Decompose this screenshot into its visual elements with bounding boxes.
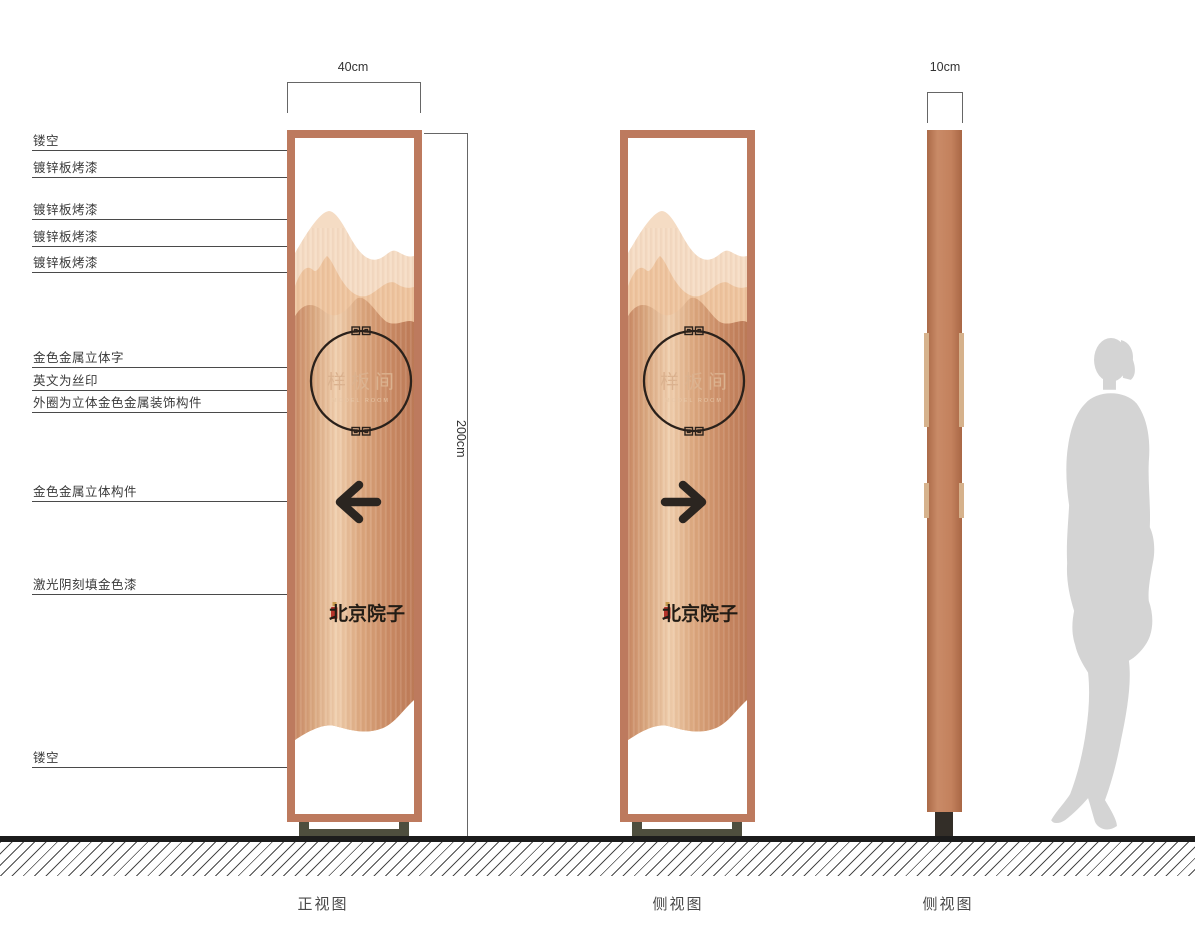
- dimension-width-bracket: [287, 82, 421, 113]
- callout-galvanized-3: 镀锌板烤漆: [33, 226, 98, 245]
- brand-text: 北京院子: [329, 602, 405, 625]
- callout-galvanized-1: 镀锌板烤漆: [33, 157, 98, 176]
- dimension-height-line: [467, 133, 468, 836]
- side-profile-foot: [935, 812, 953, 838]
- side-profile-column: [927, 130, 962, 812]
- dimension-depth-bracket: [927, 92, 963, 123]
- callout-english-silkscreen: 英文为丝印: [33, 370, 98, 389]
- leader-line: [32, 219, 300, 220]
- silhouette-hair: [1121, 340, 1135, 380]
- brushed-texture: [628, 228, 747, 814]
- callout-galvanized-4: 镀锌板烤漆: [33, 252, 98, 271]
- callout-gold-component: 金色金属立体构件: [33, 481, 137, 500]
- leader-line: [32, 412, 318, 413]
- callout-label: 外圈为立体金色金属装饰构件: [33, 392, 202, 411]
- dimension-depth-label: 10cm: [930, 60, 961, 74]
- side-profile-strip: [959, 333, 964, 427]
- leader-line: [32, 150, 305, 151]
- front-view-panel: 样板间 MODEL ROOM 北京院子: [295, 138, 414, 814]
- room-name-en-text: MODEL ROOM: [665, 398, 723, 404]
- caption-front-view: 正视图: [297, 893, 348, 914]
- callout-outer-ring: 外圈为立体金色金属装饰构件: [33, 392, 202, 411]
- callout-hollow-top: 镂空: [33, 130, 59, 149]
- callout-label: 镀锌板烤漆: [33, 226, 98, 245]
- brand-calligraphy: 北京院子: [329, 602, 405, 625]
- leader-line: [32, 272, 291, 273]
- leader-line: [32, 177, 288, 178]
- side-profile-strip: [924, 333, 929, 427]
- silhouette-body: [1051, 393, 1154, 829]
- callout-label: 镀锌板烤漆: [33, 157, 98, 176]
- room-name-text: 样板间: [327, 371, 399, 393]
- dimension-height-tick: [424, 133, 467, 134]
- caption-side-view-2: 侧视图: [922, 893, 973, 914]
- side-profile-strip: [924, 483, 929, 518]
- side-profile-strip: [959, 483, 964, 518]
- human-scale-silhouette: [1037, 334, 1167, 837]
- brand-text: 北京院子: [662, 602, 738, 625]
- callout-galvanized-2: 镀锌板烤漆: [33, 199, 98, 218]
- callout-label: 镀锌板烤漆: [33, 252, 98, 271]
- callout-label: 金色金属立体构件: [33, 481, 137, 500]
- side-view1-panel: 样板间 MODEL ROOM 北京院子: [628, 138, 747, 814]
- dimension-width-label: 40cm: [338, 60, 369, 74]
- callout-label: 激光阴刻填金色漆: [33, 574, 137, 593]
- brushed-texture: [295, 228, 414, 814]
- caption-side-view-1: 侧视图: [652, 893, 703, 914]
- room-name-text: 样板间: [660, 371, 732, 393]
- callout-laser-engraved: 激光阴刻填金色漆: [33, 574, 137, 593]
- leader-line: [32, 246, 288, 247]
- brand-calligraphy: 北京院子: [662, 602, 738, 625]
- callout-label: 英文为丝印: [33, 370, 98, 389]
- dimension-height-label: 200cm: [454, 420, 468, 458]
- callout-label: 金色金属立体字: [33, 347, 124, 366]
- signage-design-sheet: 镂空 镀锌板烤漆 镀锌板烤漆 镀锌板烤漆 镀锌板烤漆 金色金属立体字 英文为丝印…: [0, 0, 1195, 927]
- callout-gold-letters: 金色金属立体字: [33, 347, 124, 366]
- side-view1-base: [632, 822, 742, 837]
- room-name-en-text: MODEL ROOM: [332, 398, 390, 404]
- front-view-base: [299, 822, 409, 837]
- callout-label: 镂空: [33, 747, 59, 766]
- callout-label: 镂空: [33, 130, 59, 149]
- ground-hatching: [0, 842, 1195, 876]
- leader-line: [32, 767, 301, 768]
- callout-label: 镀锌板烤漆: [33, 199, 98, 218]
- callout-hollow-bottom: 镂空: [33, 747, 59, 766]
